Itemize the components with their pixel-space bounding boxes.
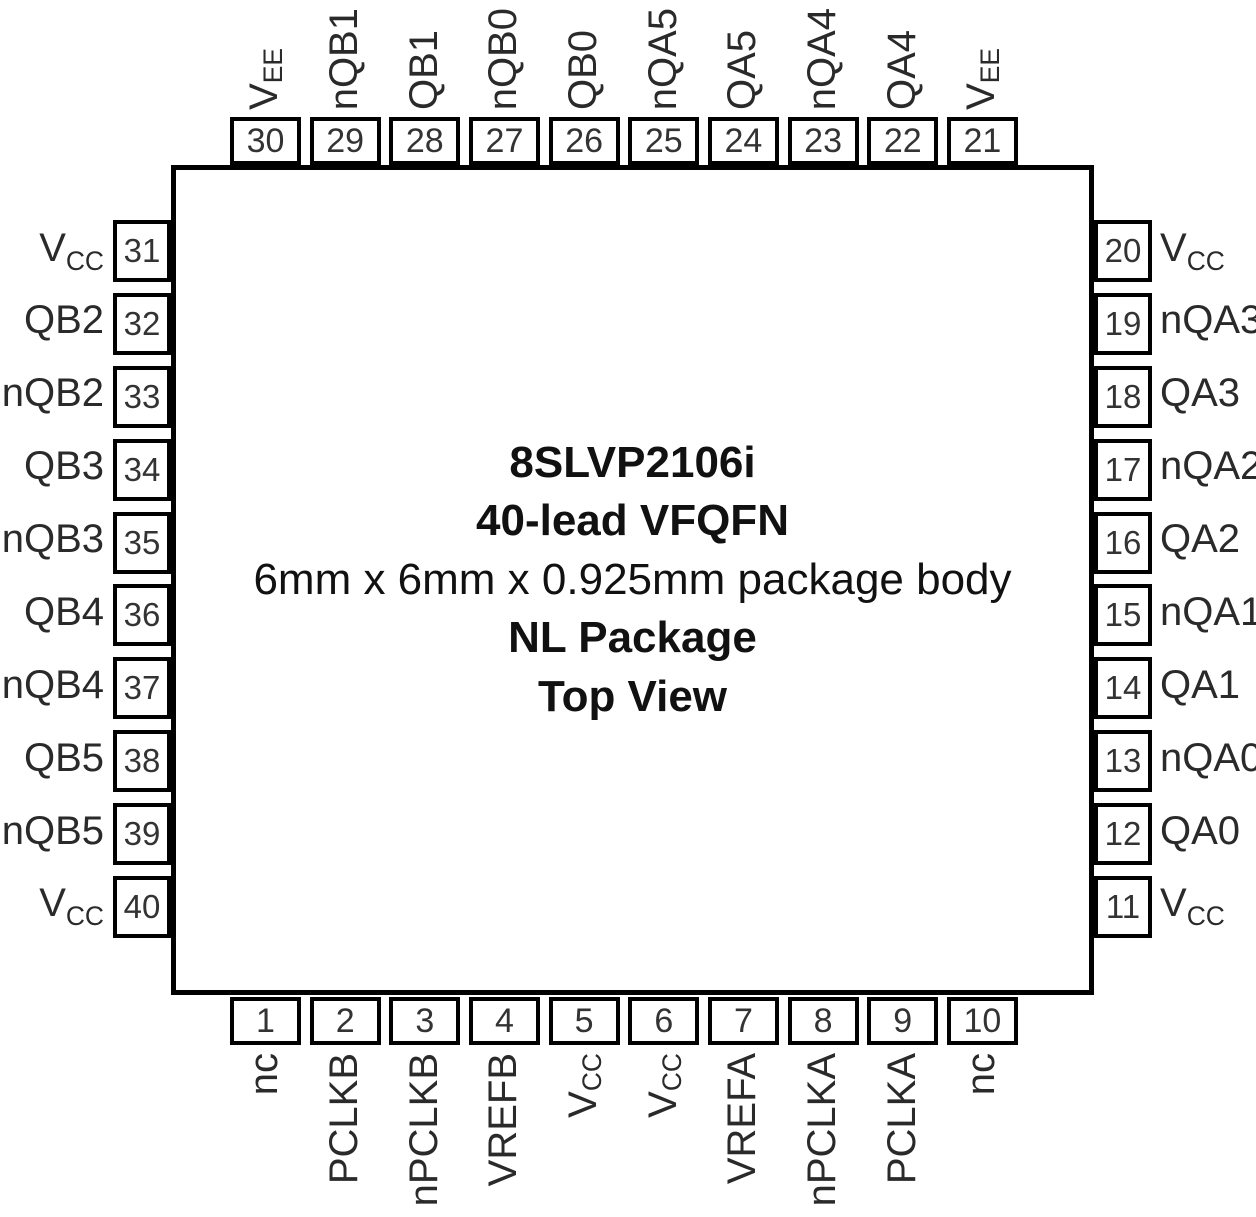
- pin-6-label: VCC: [643, 1053, 685, 1118]
- pin-28: QB128: [389, 0, 460, 165]
- pin-37: nQB437: [0, 657, 171, 719]
- pin-31-label: VCC: [39, 226, 104, 277]
- chip-title: 8SLVP2106i: [253, 434, 1011, 493]
- pin-2-box: 2: [310, 997, 381, 1045]
- pin-26: QB026: [549, 0, 620, 165]
- pin-30-label: VEE: [244, 48, 286, 110]
- pin-18-label: QA3: [1160, 371, 1240, 422]
- pin-12-box: 12: [1094, 803, 1152, 865]
- pin-34-box: 34: [113, 439, 171, 501]
- pin-31: VCC31: [0, 220, 171, 282]
- pin-6: 6VCC: [628, 997, 699, 1206]
- pin-29-label: nQB1: [324, 8, 366, 110]
- pin-30: VEE30: [230, 0, 301, 165]
- pin-15-box: 15: [1094, 584, 1152, 646]
- pin-3-label: nPCLKB: [404, 1053, 446, 1206]
- pin-22: QA422: [867, 0, 938, 165]
- pin-8-box: 8: [788, 997, 859, 1045]
- ic-pinout-diagram: 8SLVP2106i 40-lead VFQFN 6mm x 6mm x 0.9…: [0, 0, 1256, 1217]
- pin-5: 5VCC: [549, 997, 620, 1206]
- pin-4-label: VREFB: [483, 1053, 525, 1186]
- pin-22-box: 22: [867, 117, 938, 165]
- pin-27-box: 27: [469, 117, 540, 165]
- pin-16: 16QA2: [1094, 512, 1256, 574]
- pin-10: 10nc: [947, 997, 1018, 1206]
- chip-body-size: 6mm x 6mm x 0.925mm package body: [253, 551, 1011, 610]
- pin-7-label: VREFA: [722, 1053, 764, 1184]
- pin-40-label: VCC: [39, 881, 104, 932]
- pin-14-label: QA1: [1160, 663, 1240, 714]
- pin-25: nQA525: [628, 0, 699, 165]
- pin-20: 20VCC: [1094, 220, 1256, 282]
- pin-7: 7VREFA: [708, 997, 779, 1206]
- pin-3: 3nPCLKB: [389, 997, 460, 1206]
- pin-34-label: QB3: [24, 444, 104, 495]
- pin-14-box: 14: [1094, 657, 1152, 719]
- pin-27-label: nQB0: [483, 8, 525, 110]
- pin-17-label: nQA2: [1160, 444, 1256, 495]
- right-pin-column: 20VCC 19nQA3 18QA3 17nQA2 16QA2 15nQA1 1…: [1094, 220, 1256, 938]
- pin-16-label: QA2: [1160, 517, 1240, 568]
- pin-33-box: 33: [113, 366, 171, 428]
- pin-27: nQB027: [469, 0, 540, 165]
- pin-36: QB436: [0, 584, 171, 646]
- pin-28-label: QB1: [404, 30, 446, 110]
- pin-17-box: 17: [1094, 439, 1152, 501]
- pin-10-box: 10: [947, 997, 1018, 1045]
- pin-2-label: PCLKB: [324, 1053, 366, 1184]
- pin-13-label: nQA0: [1160, 736, 1256, 787]
- pin-31-box: 31: [113, 220, 171, 282]
- pin-4-box: 4: [469, 997, 540, 1045]
- pin-5-label: VCC: [563, 1053, 605, 1118]
- pin-8-label: nPCLKA: [802, 1053, 844, 1206]
- pin-22-label: QA4: [882, 30, 924, 110]
- package-body: 8SLVP2106i 40-lead VFQFN 6mm x 6mm x 0.9…: [171, 165, 1094, 995]
- pin-38-label: QB5: [24, 736, 104, 787]
- pin-21-box: 21: [947, 117, 1018, 165]
- pin-40-box: 40: [113, 876, 171, 938]
- pin-38-box: 38: [113, 730, 171, 792]
- pin-32-box: 32: [113, 293, 171, 355]
- pin-33-label: nQB2: [2, 371, 104, 422]
- pin-15-label: nQA1: [1160, 590, 1256, 641]
- pin-23-label: nQA4: [802, 8, 844, 110]
- pin-9-box: 9: [867, 997, 938, 1045]
- pin-1-box: 1: [230, 997, 301, 1045]
- pin-4: 4VREFB: [469, 997, 540, 1206]
- package-description: 8SLVP2106i 40-lead VFQFN 6mm x 6mm x 0.9…: [253, 434, 1011, 727]
- pin-9-label: PCLKA: [882, 1053, 924, 1184]
- pin-8: 8nPCLKA: [788, 997, 859, 1206]
- pin-24-label: QA5: [722, 30, 764, 110]
- pin-15: 15nQA1: [1094, 584, 1256, 646]
- pin-35: nQB335: [0, 512, 171, 574]
- pin-33: nQB233: [0, 366, 171, 428]
- pin-25-box: 25: [628, 117, 699, 165]
- pin-2: 2PCLKB: [310, 997, 381, 1206]
- pin-19-label: nQA3: [1160, 298, 1256, 349]
- pin-24-box: 24: [708, 117, 779, 165]
- pin-26-label: QB0: [563, 30, 605, 110]
- pin-11-box: 11: [1094, 876, 1152, 938]
- pin-20-label: VCC: [1160, 226, 1225, 277]
- pin-32: QB232: [0, 293, 171, 355]
- pin-9: 9PCLKA: [867, 997, 938, 1206]
- chip-view-label: Top View: [253, 668, 1011, 727]
- pin-28-box: 28: [389, 117, 460, 165]
- pin-1: 1nc: [230, 997, 301, 1206]
- pin-3-box: 3: [389, 997, 460, 1045]
- pin-23: nQA423: [788, 0, 859, 165]
- pin-19-box: 19: [1094, 293, 1152, 355]
- pin-14: 14QA1: [1094, 657, 1256, 719]
- pin-11: 11VCC: [1094, 876, 1256, 938]
- chip-package-name: NL Package: [253, 609, 1011, 668]
- pin-37-label: nQB4: [2, 663, 104, 714]
- pin-29: nQB129: [310, 0, 381, 165]
- pin-6-box: 6: [628, 997, 699, 1045]
- pin-39-box: 39: [113, 803, 171, 865]
- pin-23-box: 23: [788, 117, 859, 165]
- pin-17: 17nQA2: [1094, 439, 1256, 501]
- pin-39: nQB539: [0, 803, 171, 865]
- pin-21-label: VEE: [961, 48, 1003, 110]
- pin-30-box: 30: [230, 117, 301, 165]
- chip-package-type: 40-lead VFQFN: [253, 492, 1011, 551]
- bottom-pin-row: 1nc 2PCLKB 3nPCLKB 4VREFB 5VCC 6VCC 7VRE…: [230, 997, 1018, 1206]
- pin-36-label: QB4: [24, 590, 104, 641]
- pin-16-box: 16: [1094, 512, 1152, 574]
- pin-24: QA524: [708, 0, 779, 165]
- pin-5-box: 5: [549, 997, 620, 1045]
- pin-18-box: 18: [1094, 366, 1152, 428]
- pin-40: VCC40: [0, 876, 171, 938]
- pin-12: 12QA0: [1094, 803, 1256, 865]
- pin-35-box: 35: [113, 512, 171, 574]
- pin-19: 19nQA3: [1094, 293, 1256, 355]
- pin-39-label: nQB5: [2, 809, 104, 860]
- pin-36-box: 36: [113, 584, 171, 646]
- pin-13: 13nQA0: [1094, 730, 1256, 792]
- pin-26-box: 26: [549, 117, 620, 165]
- pin-18: 18QA3: [1094, 366, 1256, 428]
- pin-11-label: VCC: [1160, 881, 1225, 932]
- pin-29-box: 29: [310, 117, 381, 165]
- top-pin-row: VEE30 nQB129 QB128 nQB027 QB026 nQA525 Q…: [230, 0, 1018, 165]
- left-pin-column: VCC31 QB232 nQB233 QB334 nQB335 QB436 nQ…: [0, 220, 171, 938]
- pin-38: QB538: [0, 730, 171, 792]
- pin-7-box: 7: [708, 997, 779, 1045]
- pin-21: VEE21: [947, 0, 1018, 165]
- pin-25-label: nQA5: [643, 8, 685, 110]
- pin-34: QB334: [0, 439, 171, 501]
- pin-12-label: QA0: [1160, 809, 1240, 860]
- pin-1-label: nc: [244, 1053, 286, 1095]
- pin-10-label: nc: [961, 1053, 1003, 1095]
- pin-20-box: 20: [1094, 220, 1152, 282]
- pin-13-box: 13: [1094, 730, 1152, 792]
- pin-35-label: nQB3: [2, 517, 104, 568]
- pin-37-box: 37: [113, 657, 171, 719]
- pin-32-label: QB2: [24, 298, 104, 349]
